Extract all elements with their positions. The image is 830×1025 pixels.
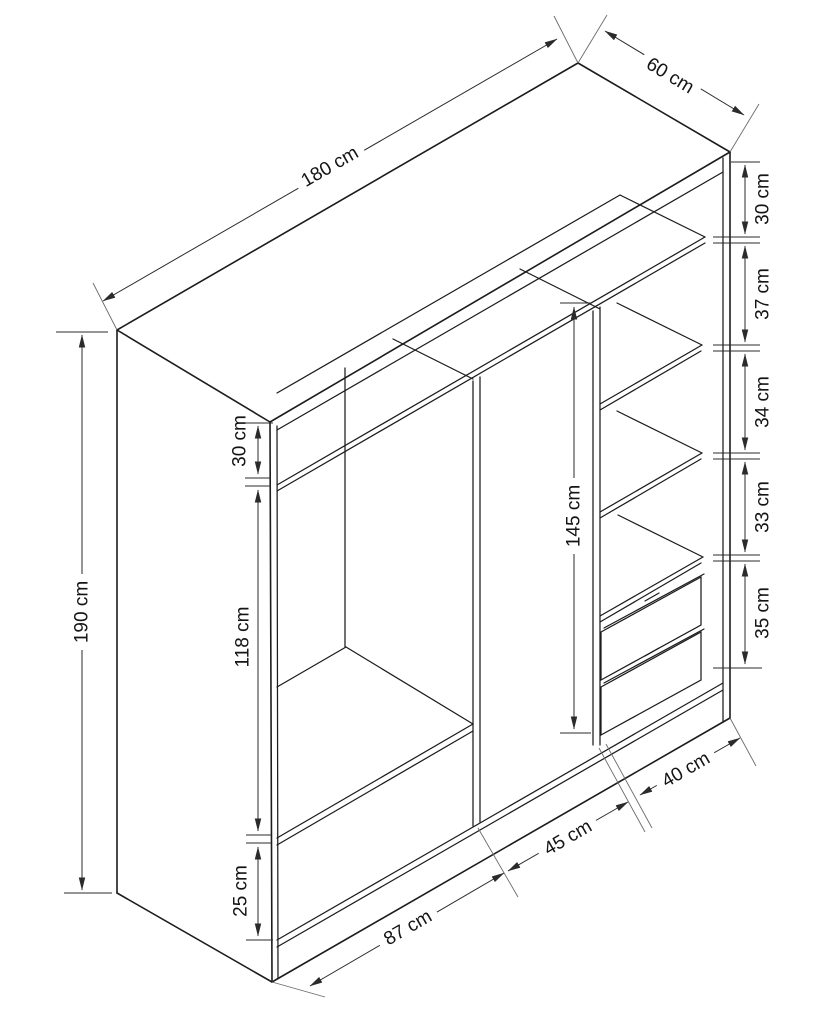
dim-overall-height: 190 cm: [56, 332, 112, 893]
dim-label-left-hanging-space: 118 cm: [233, 607, 254, 668]
dim-label-shelf-gap-2: 37 cm: [753, 268, 774, 320]
dim-label-left-top-gap: 30 cm: [230, 415, 251, 467]
dim-label-shelf-gap-5: 35 cm: [753, 587, 774, 639]
wardrobe-outline: [117, 63, 730, 982]
dim-label-left-bottom-gap: 25 cm: [231, 865, 252, 917]
divider-right: [520, 269, 600, 745]
dim-overall-depth: 60 cm: [578, 15, 759, 152]
wardrobe-dimension-diagram: 180 cm 60 cm 190 cm: [0, 0, 830, 1025]
left-floor-shelf: [277, 647, 473, 845]
right-shelf-2: [600, 303, 702, 410]
dim-label-overall-depth: 60 cm: [642, 54, 697, 99]
dim-label-shelf-gap-1: 30 cm: [753, 173, 774, 225]
dim-label-overall-height: 190 cm: [72, 581, 93, 643]
dim-right-shelf-chain: 30 cm 37 cm 34 cm 33 cm 35 cm: [713, 162, 774, 668]
dim-middle-height: 145 cm: [560, 303, 591, 733]
dim-label-shelf-gap-4: 33 cm: [753, 481, 774, 533]
right-shelf-3: [600, 411, 702, 518]
wardrobe-diagram-svg: 180 cm 60 cm 190 cm: [0, 0, 830, 1025]
dim-label-bottom-width-1: 87 cm: [380, 906, 435, 950]
dim-label-shelf-gap-3: 34 cm: [753, 376, 774, 428]
dim-overall-width: 180 cm: [93, 16, 578, 330]
dim-bottom-width-chain: 87 cm 45 cm 40 cm: [272, 718, 756, 997]
dim-left-interior-chain: 30 cm 118 cm 25 cm: [230, 415, 274, 940]
top-shelf: [277, 195, 705, 491]
dim-label-middle-height: 145 cm: [564, 485, 585, 547]
